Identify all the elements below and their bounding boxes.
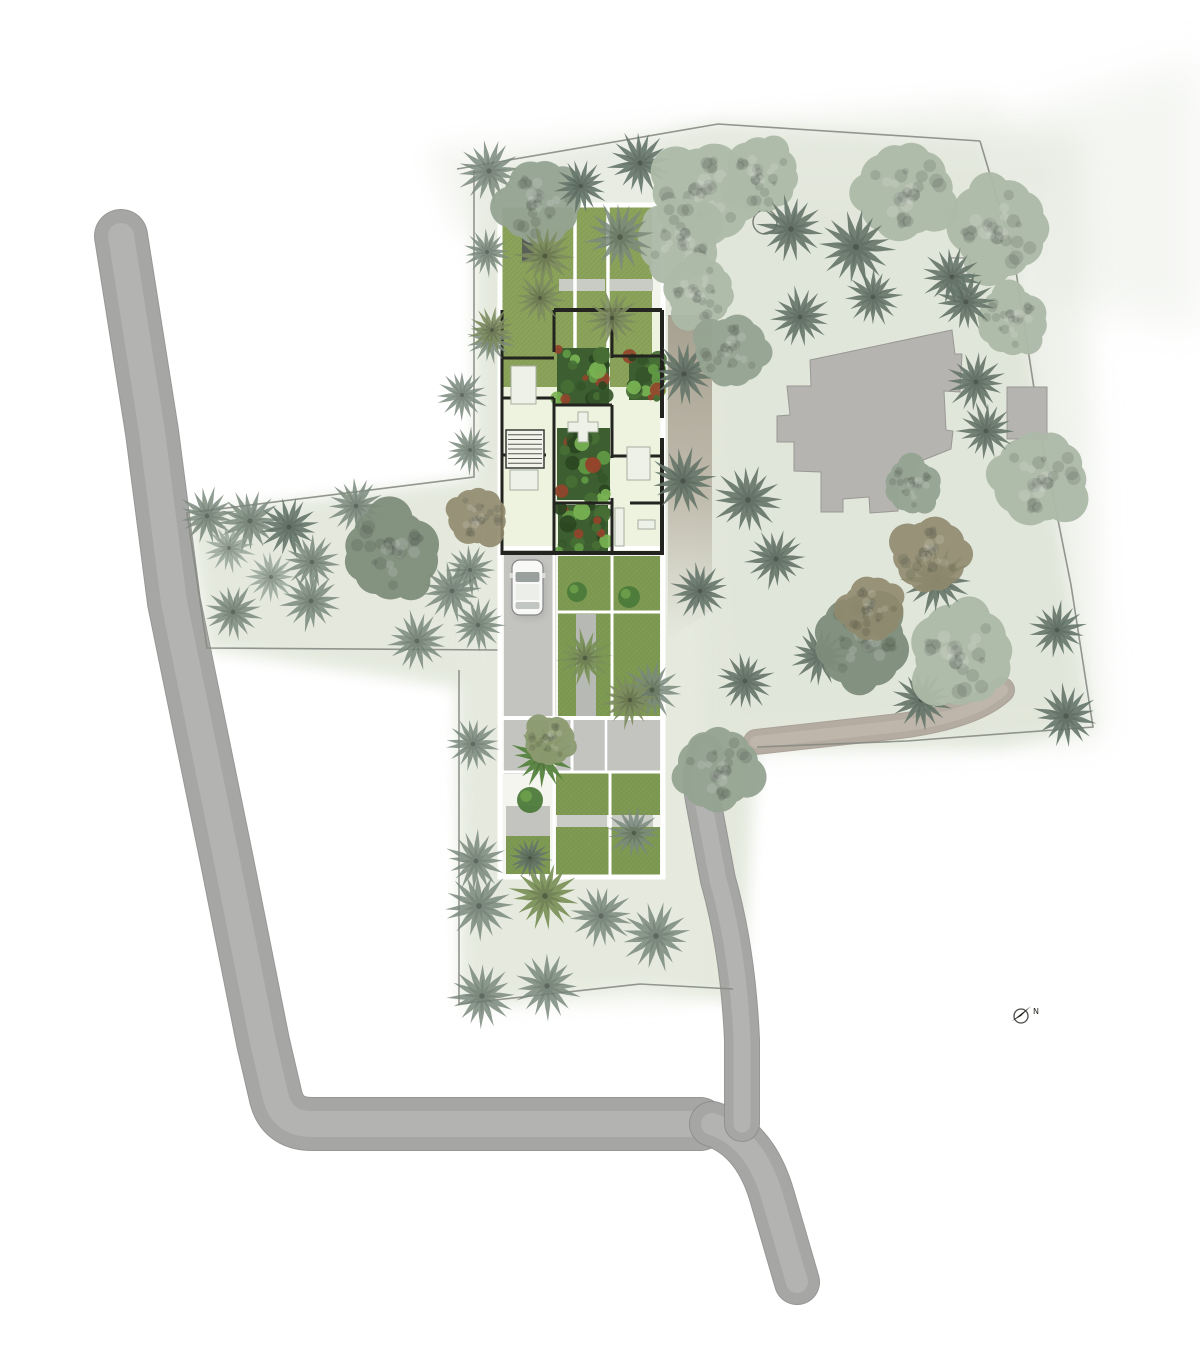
shrub bbox=[618, 586, 640, 608]
paved-area bbox=[557, 815, 607, 827]
site-plan-drawing bbox=[0, 0, 1200, 1371]
furniture bbox=[510, 470, 538, 490]
furniture bbox=[511, 366, 536, 404]
furniture bbox=[615, 508, 624, 546]
parked-car bbox=[510, 560, 546, 618]
paved-area bbox=[610, 279, 653, 291]
courtyard-garden bbox=[554, 501, 613, 555]
north-label: N bbox=[1033, 1008, 1039, 1016]
site-plan: N bbox=[0, 0, 1200, 1371]
staircase bbox=[506, 430, 544, 468]
north-arrow bbox=[1012, 1006, 1031, 1023]
furniture bbox=[627, 447, 650, 480]
shrub bbox=[517, 787, 543, 813]
shrub bbox=[567, 582, 587, 602]
furniture bbox=[638, 520, 655, 529]
courtyard-garden bbox=[550, 345, 613, 406]
main-residence-plan bbox=[500, 205, 667, 877]
paved-area bbox=[559, 279, 605, 291]
